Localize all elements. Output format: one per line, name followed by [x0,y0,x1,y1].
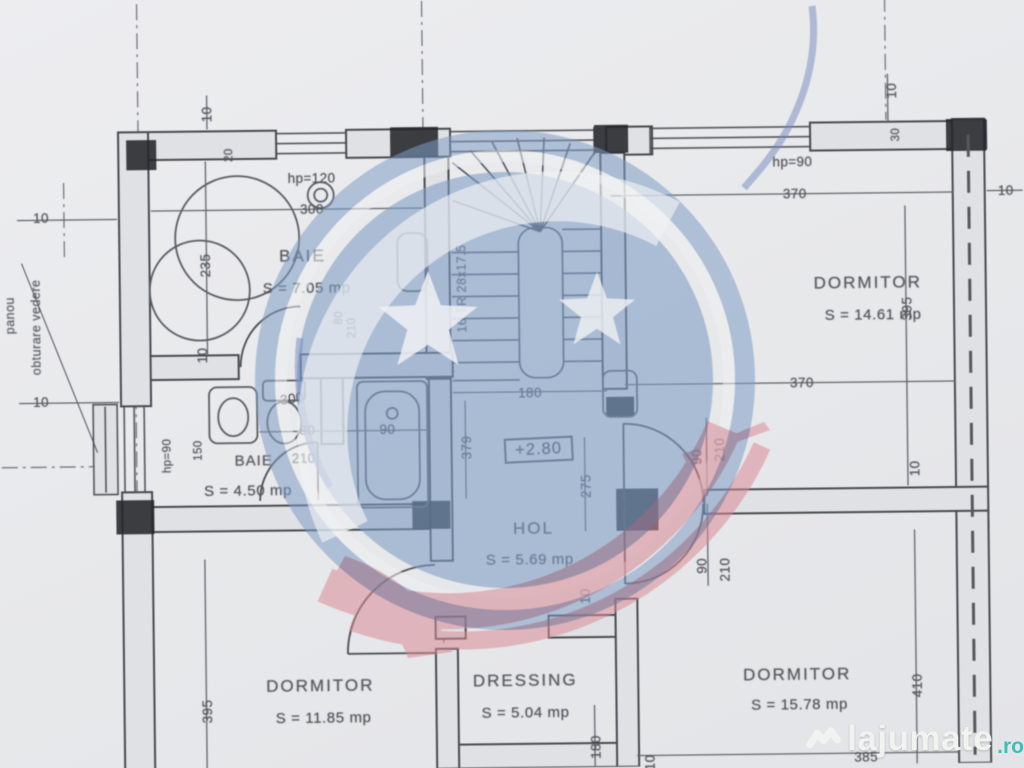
area-label: S = 5.04 mp [482,704,570,722]
floor-plan-layer: 10 20 hp=120 300 BAIE S = 7.05 mp 235 10… [0,0,1024,768]
room-label: DORMITOR [814,272,922,293]
dimension-lines [15,72,1024,768]
dim-label: 379 [459,436,474,460]
dim-label: 30 [890,128,902,142]
sink [209,387,258,444]
dim-label: 395 [899,297,914,321]
site-watermark: lajumate .ro [806,712,1024,766]
area-label: S = 7.05 mp [263,279,351,297]
dim-label: 10 [33,395,49,410]
dim-label: 395 [200,700,215,724]
dim-label: 90 [689,449,704,465]
dim-label: 210 [346,318,358,339]
watermark-brand-text: lajumate [847,719,993,759]
dim-label: 210 [717,558,732,582]
dim-label: hp=90 [772,154,812,169]
area-label: S = 4.50 mp [204,482,292,500]
dim-label: 10 [195,348,210,364]
area-label: S = 5.69 mp [486,551,574,569]
note-label: obturare vedere [29,279,44,375]
dim-label: 90 [694,558,709,574]
dim-label: 10 [884,83,899,99]
columns-group [112,119,991,537]
dim-label: 80 [333,311,345,325]
dim-label: 10 [643,754,658,768]
toilet-bowl [267,401,301,443]
scanned-floor-plan: 10 20 hp=120 300 BAIE S = 7.05 mp 235 10… [0,0,1024,768]
dim-label: 210 [712,438,727,462]
dim-label: 300 [300,202,324,217]
dim-label: 235 [198,254,213,278]
level-marker: +2.80 [504,436,574,464]
dim-label: 370 [783,186,807,201]
dim-label: hp=120 [288,170,336,186]
dim-label: 410 [910,673,925,697]
dim-label: 10 [578,588,593,604]
room-label: BAIE [235,452,273,469]
dim-label: 90 [379,422,395,437]
vent-symbol-inner [314,189,327,202]
stair-note-label: 16 TR 28x17.5 [454,244,469,332]
watermark-tld-text: .ro [997,735,1024,766]
dim-label: 210 [292,451,316,466]
staircase [450,137,603,381]
floor-plan-drawing [0,0,1024,768]
dim-label: 180 [518,385,542,400]
dim-label: 10 [907,460,922,476]
washbasin [397,233,428,291]
note-label: panou [3,297,17,334]
dim-label: 20 [223,148,235,162]
dim-label: 10 [199,106,214,122]
room-label: HOL [513,519,554,539]
dim-label: 275 [578,474,593,498]
dim-label: 10 [33,211,49,226]
dim-label: 10 [998,183,1014,198]
dim-label: 150 [192,440,204,461]
room-label: DRESSING [473,670,578,691]
handshake-icon [806,722,841,756]
room-label: BAIE [279,246,326,267]
dim-label: 370 [790,375,814,390]
area-label: S = 11.85 mp [276,709,372,727]
dim-label: hp=90 [161,439,173,473]
room-label: DORMITOR [266,676,374,697]
dim-label: 180 [588,735,603,759]
room-label: DORMITOR [743,664,851,685]
dim-label: 80 [299,423,315,438]
